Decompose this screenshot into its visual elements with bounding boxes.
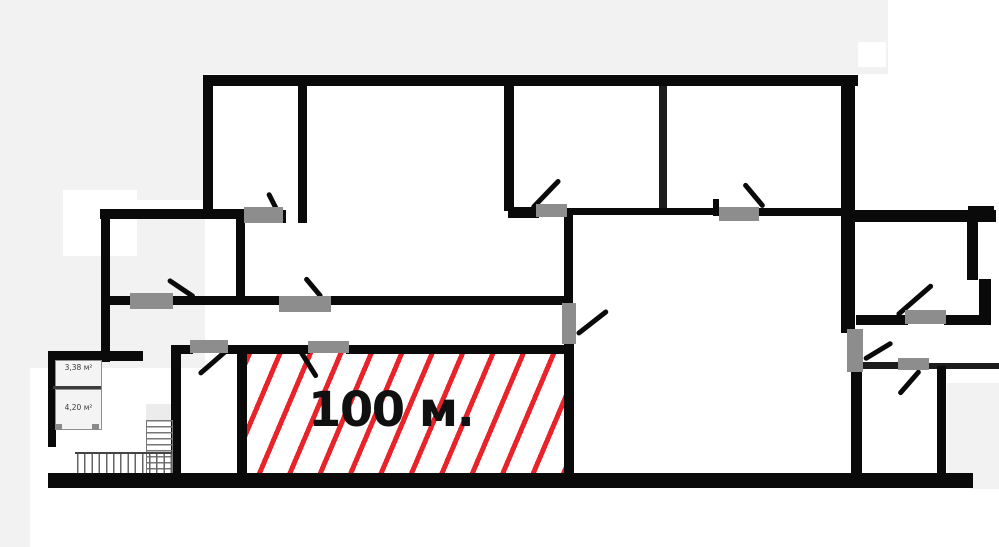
door-marker-5 bbox=[308, 341, 349, 353]
door-marker-3 bbox=[279, 296, 331, 312]
wall-v1 bbox=[203, 75, 213, 215]
wall-v7 bbox=[564, 343, 574, 481]
wall-h7a bbox=[567, 208, 714, 215]
door-marker-2 bbox=[130, 293, 173, 309]
wall-h10a bbox=[860, 362, 902, 369]
wall-h7b bbox=[757, 208, 847, 216]
door-swing-11 bbox=[575, 309, 609, 337]
wall-v3 bbox=[101, 209, 110, 362]
wall-v9b bbox=[851, 370, 862, 477]
outside-area-left-strip bbox=[0, 368, 30, 547]
wall-h9b bbox=[944, 315, 991, 325]
wall-v2 bbox=[298, 86, 307, 223]
door-marker-7 bbox=[536, 204, 567, 217]
threshold-mark-right bbox=[92, 424, 99, 430]
stairs-landing bbox=[146, 404, 171, 420]
wall-v16 bbox=[564, 209, 573, 305]
wall-v4 bbox=[236, 211, 245, 301]
stairs-run-horizontal bbox=[77, 454, 172, 473]
threshold-mark-left bbox=[55, 424, 62, 430]
room-area-label-1: 3,38 м² bbox=[65, 364, 93, 372]
floor-plan: 100 м. bbox=[0, 0, 999, 547]
wall-h2 bbox=[100, 209, 245, 219]
outside-area-top bbox=[0, 0, 888, 74]
door-swing-6 bbox=[863, 340, 894, 361]
door-swing-8 bbox=[742, 182, 766, 209]
wall-v6 bbox=[237, 345, 247, 481]
small-room-divider bbox=[53, 386, 101, 389]
door-marker-8 bbox=[719, 207, 759, 221]
door-swing-10 bbox=[897, 369, 922, 396]
door-marker-11 bbox=[562, 303, 576, 344]
small-room-1: 3,38 м² bbox=[55, 360, 102, 389]
wall-h3c bbox=[329, 296, 567, 305]
wall-h8-bump bbox=[968, 206, 994, 214]
wall-v9 bbox=[841, 85, 855, 333]
area-size-label: 100 м. bbox=[308, 386, 473, 434]
wall-top bbox=[205, 75, 858, 86]
wall-v10 bbox=[659, 86, 667, 213]
door-marker-4 bbox=[190, 340, 228, 353]
wall-v11 bbox=[504, 78, 514, 211]
outside-area-bottom-right bbox=[947, 383, 999, 473]
door-marker-9 bbox=[905, 310, 946, 324]
room-area-label-2: 4,20 м² bbox=[65, 404, 93, 412]
wall-v15 bbox=[937, 366, 946, 475]
wall-h9a bbox=[856, 315, 908, 325]
wall-v12 bbox=[967, 222, 978, 280]
white-patch-top-right bbox=[858, 42, 886, 67]
door-marker-6 bbox=[847, 329, 863, 372]
door-marker-1 bbox=[244, 207, 283, 223]
outside-area-bottom-right-2 bbox=[970, 473, 999, 489]
wall-h3b bbox=[172, 296, 281, 305]
wall-bottom bbox=[48, 473, 973, 488]
wall-h4c bbox=[346, 345, 568, 354]
door-marker-10 bbox=[898, 358, 929, 370]
